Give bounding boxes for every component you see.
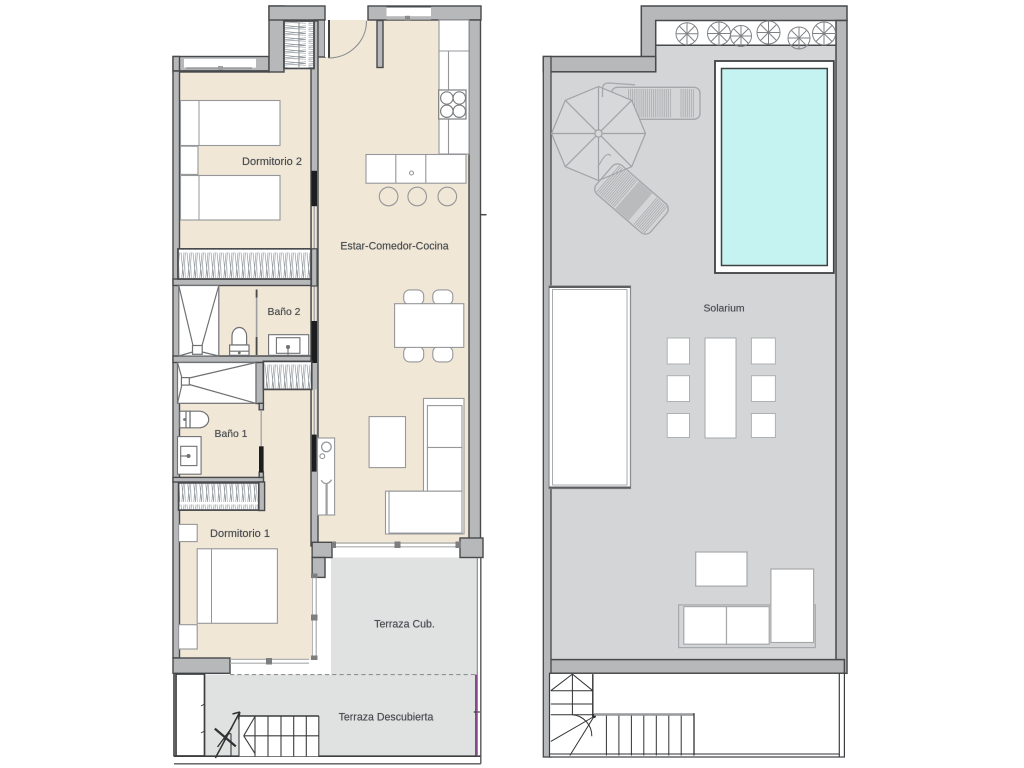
svg-text:Terraza Descubierta: Terraza Descubierta xyxy=(339,712,434,724)
svg-text:Dormitorio 2: Dormitorio 2 xyxy=(242,156,302,168)
svg-text:Baño 1: Baño 1 xyxy=(215,429,248,440)
svg-text:Solarium: Solarium xyxy=(704,304,745,315)
svg-text:Dormitorio 1: Dormitorio 1 xyxy=(210,528,270,540)
svg-text:Estar-Comedor-Cocina: Estar-Comedor-Cocina xyxy=(340,241,448,253)
svg-text:Terraza Cub.: Terraza Cub. xyxy=(374,619,435,631)
svg-text:Baño 2: Baño 2 xyxy=(268,307,301,318)
